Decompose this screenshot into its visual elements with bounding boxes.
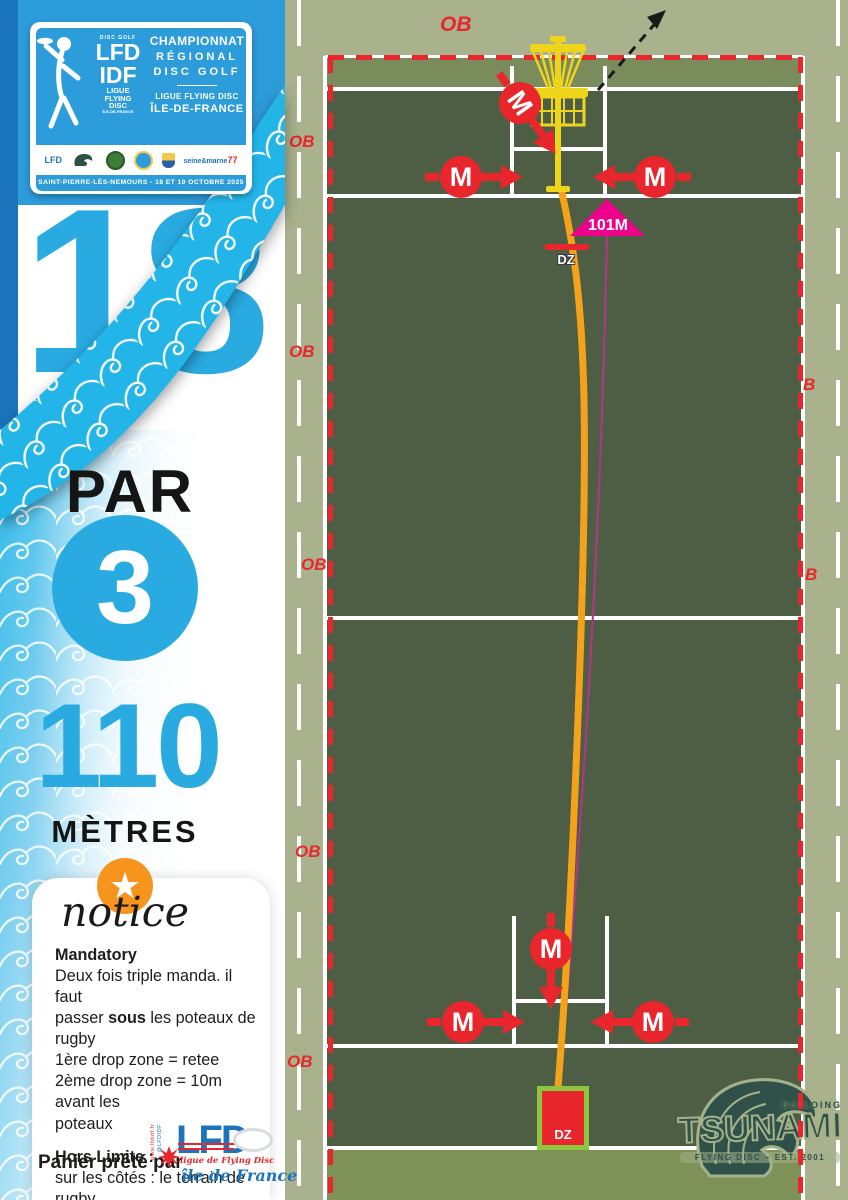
poster-divider bbox=[177, 85, 217, 86]
par-value-circle: 3 bbox=[52, 515, 198, 661]
sponsor-seine-marne-logo: seine&marne77 bbox=[183, 155, 237, 165]
sponsor-77-text: 77 bbox=[227, 155, 237, 165]
poster-title-2: RÉGIONAL bbox=[148, 51, 246, 63]
throw-direction-arrowhead bbox=[647, 10, 666, 29]
mando-marker-bottom-center: M bbox=[527, 909, 575, 1019]
lfd-idf-text: île de France bbox=[181, 1166, 297, 1185]
event-location-date-banner: SAINT-PIERRE-LÈS-NEMOURS - 18 ET 19 OCTO… bbox=[36, 175, 246, 191]
mando-letter: M bbox=[540, 934, 563, 964]
lfd-ligue-text: ligue de Flying Disc bbox=[180, 1156, 274, 1166]
poster-title-1: CHAMPIONNAT bbox=[148, 34, 246, 48]
lfd-logo-line-2 bbox=[178, 1148, 234, 1150]
disc-thrower-silhouette-icon bbox=[36, 28, 96, 138]
drop-zone-bar bbox=[545, 244, 589, 250]
mandatory-line-2-bold: sous bbox=[108, 1009, 146, 1027]
par-label: PAR bbox=[25, 462, 235, 522]
sponsor-shield-logo bbox=[162, 153, 175, 168]
badge-lfd: LFD bbox=[88, 41, 148, 64]
mando-marker-bottom-left: M bbox=[423, 998, 533, 1046]
mando-marker-bottom-right: M bbox=[583, 998, 693, 1046]
badge-idf: IDF bbox=[88, 64, 148, 87]
lfd-website-text: www.lfdidf.fr bbox=[150, 1124, 156, 1160]
mandatory-line-2-pre: passer bbox=[55, 1009, 108, 1027]
mando-marker-mid-left: M bbox=[421, 153, 531, 201]
disc-icon bbox=[37, 38, 53, 44]
hole-distance-unit: MÈTRES bbox=[10, 814, 240, 850]
mando-letter: M bbox=[450, 162, 473, 192]
sponsor-lfd-logo: LFD bbox=[44, 155, 62, 165]
mando-letter: M bbox=[452, 1007, 475, 1037]
sponsor-tsunami-logo bbox=[71, 152, 97, 168]
drop-zone-tee-label: DZ bbox=[542, 1127, 584, 1142]
drop-zone-tee: DZ bbox=[537, 1086, 589, 1150]
mando-letter: M bbox=[644, 162, 667, 192]
caddy-book-page: DU LOING TSUNAMI FLYING DISC – EST. 2001… bbox=[0, 0, 848, 1200]
lfd-badge: DISC GOLF LFD IDF LIGUE FLYING DISC ÎLE-… bbox=[88, 36, 148, 114]
mandatory-line-2: passer sous les poteaux de rugby bbox=[55, 1008, 263, 1050]
event-poster-card: DISC GOLF LFD IDF LIGUE FLYING DISC ÎLE-… bbox=[30, 22, 252, 194]
sponsor-seine-text: seine&marne bbox=[183, 158, 227, 165]
distance-marker-label: 101M bbox=[570, 217, 646, 235]
hole-distance: 110 bbox=[0, 686, 255, 806]
sponsor-nemours-logo bbox=[134, 151, 153, 170]
lfd-star-icon bbox=[158, 1146, 180, 1168]
poster-header-panel: DISC GOLF LFD IDF LIGUE FLYING DISC ÎLE-… bbox=[36, 28, 246, 145]
sponsor-green-circle-logo bbox=[106, 151, 125, 170]
notice-title: notice bbox=[20, 888, 230, 936]
poster-titles: CHAMPIONNAT RÉGIONAL DISC GOLF LIGUE FLY… bbox=[148, 34, 246, 115]
poster-title-3: DISC GOLF bbox=[148, 66, 246, 78]
mando-letter: M bbox=[642, 1007, 665, 1037]
mandatory-line-3: 1ère drop zone = retee bbox=[55, 1050, 263, 1071]
poster-subtitle-1: LIGUE FLYING DISC bbox=[148, 92, 246, 101]
lfd-logo-line-1 bbox=[178, 1143, 240, 1145]
throw-direction-arrow-line bbox=[598, 19, 659, 90]
mandatory-line-1: Deux fois triple manda. il faut bbox=[55, 966, 263, 1008]
mandatory-line-4: 2ème drop zone = 10m avant les bbox=[55, 1071, 263, 1113]
poster-subtitle-2: ÎLE-DE-FRANCE bbox=[148, 103, 246, 115]
lfd-disc-icon bbox=[233, 1128, 273, 1152]
par-value: 3 bbox=[96, 536, 154, 640]
sponsor-logos-row: LFD seine&marne77 bbox=[36, 145, 246, 175]
badge-idf-small: ÎLE-DE-FRANCE bbox=[88, 110, 148, 114]
drop-zone-1-label: DZ bbox=[546, 252, 586, 267]
mando-marker-mid-right: M bbox=[585, 153, 695, 201]
mandatory-title: Mandatory bbox=[55, 945, 263, 966]
